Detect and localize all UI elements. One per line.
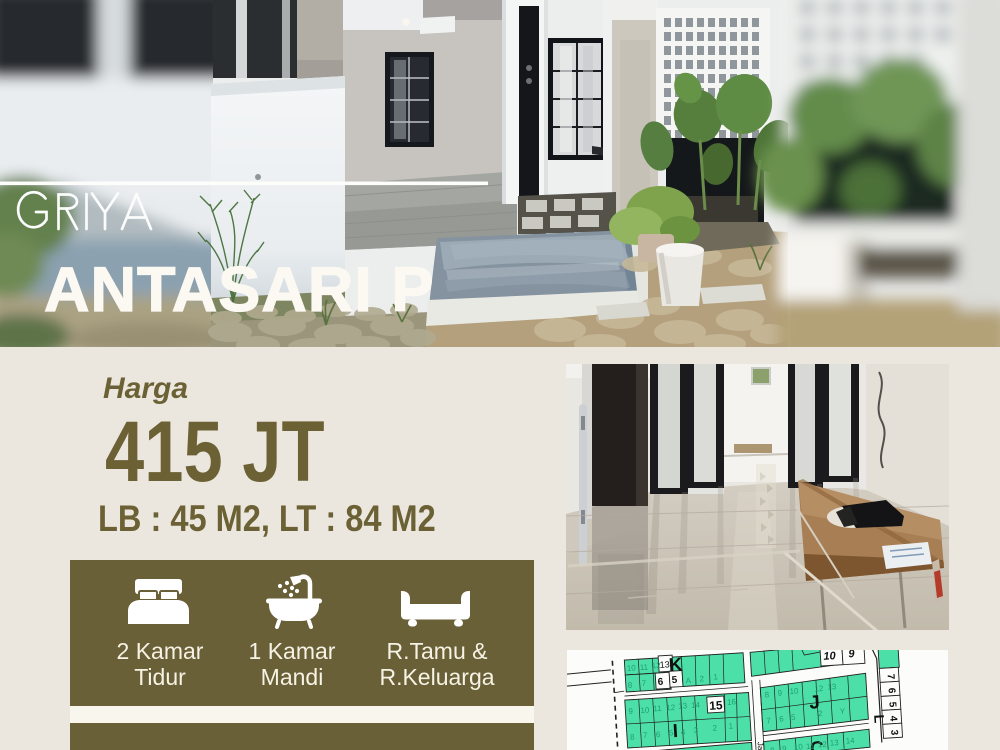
svg-text:12: 12 — [666, 703, 676, 713]
svg-text:12: 12 — [651, 661, 661, 671]
svg-text:10: 10 — [640, 706, 650, 716]
svg-text:ANTASARI P: ANTASARI P — [44, 255, 434, 325]
svg-text:16: 16 — [727, 697, 737, 707]
svg-text:10: 10 — [627, 663, 637, 673]
svg-text:K: K — [668, 654, 683, 676]
svg-text:13: 13 — [829, 738, 839, 748]
svg-text:11: 11 — [640, 663, 649, 673]
svg-text:10: 10 — [823, 650, 837, 663]
svg-text:13: 13 — [659, 659, 670, 670]
svg-text:11: 11 — [806, 742, 815, 750]
svg-text:11: 11 — [653, 704, 662, 714]
svg-text:L: L — [871, 714, 888, 724]
svg-text:15: 15 — [709, 698, 724, 713]
svg-text:10: 10 — [794, 742, 804, 750]
svg-text:12: 12 — [818, 740, 828, 750]
svg-text:14: 14 — [845, 736, 855, 746]
svg-text:10: 10 — [789, 686, 799, 696]
svg-text:12: 12 — [814, 684, 824, 694]
svg-text:13: 13 — [678, 701, 688, 711]
svg-text:13: 13 — [827, 682, 837, 692]
svg-text:14: 14 — [691, 700, 701, 710]
